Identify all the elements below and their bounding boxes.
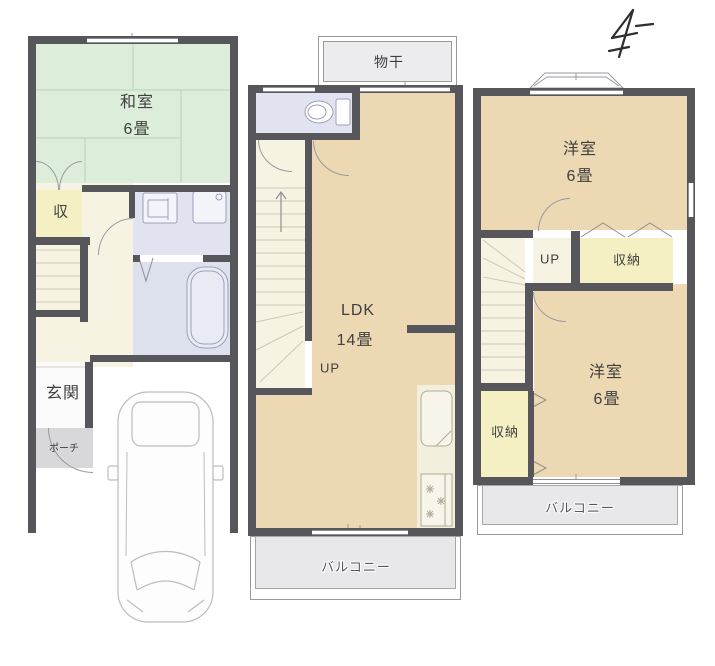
bedroom-top-size-label: 6畳 — [567, 162, 594, 186]
wall — [528, 391, 534, 477]
up-label-3f: UP — [540, 252, 560, 267]
wall — [620, 477, 695, 485]
compass-north-icon — [609, 10, 653, 57]
wall — [571, 231, 580, 291]
wall — [407, 325, 463, 333]
wall — [525, 283, 533, 383]
wall — [687, 88, 695, 485]
closet-1f-label: 収 — [53, 201, 69, 222]
wall — [256, 388, 312, 395]
bedroom-bottom-size-label: 6畳 — [594, 385, 621, 409]
wall — [203, 255, 230, 262]
window — [530, 90, 623, 95]
wall — [230, 36, 238, 533]
window — [533, 479, 620, 484]
bay-window — [530, 73, 623, 88]
wall — [36, 310, 88, 317]
window — [312, 530, 408, 535]
wall — [481, 383, 533, 391]
washer-icon — [143, 193, 177, 223]
folding-door — [139, 258, 153, 281]
wall — [129, 190, 135, 218]
balcony-2f-label: バルコニー — [321, 557, 391, 576]
up-label-2f: UP — [320, 361, 340, 376]
porch-label: ポーチ — [49, 440, 79, 455]
bedroom-bottom-label: 洋室 — [589, 358, 623, 382]
wall — [248, 85, 256, 536]
washitsu-label: 和室 — [120, 88, 154, 112]
wall — [28, 36, 36, 533]
window — [360, 87, 450, 92]
stairs-1f — [36, 250, 80, 302]
wall — [85, 362, 93, 428]
wall — [473, 230, 533, 238]
washitsu-size-label: 6畳 — [124, 115, 151, 139]
closet-bottom-label: 収納 — [491, 422, 519, 441]
ldk-size-label: 14畳 — [337, 326, 374, 350]
wall — [138, 185, 230, 192]
bedroom-top-label: 洋室 — [563, 135, 597, 159]
wall — [305, 133, 312, 341]
sink-icon — [193, 191, 226, 223]
floor-plan-canvas: 和室 6畳 収 玄関 ポーチ 物干 LDK 14畳 UP バルコニー 洋室 6畳… — [0, 0, 715, 666]
drying-label: 物干 — [374, 52, 404, 72]
balcony-3f-label: バルコニー — [545, 498, 615, 517]
wall — [473, 477, 533, 485]
wall — [90, 355, 238, 362]
ldk-label: LDK — [341, 302, 375, 320]
window — [688, 183, 694, 217]
wall — [525, 283, 673, 291]
stove-icon — [421, 474, 452, 526]
wall — [473, 88, 481, 485]
closet-top-label: 収納 — [613, 250, 641, 269]
toilet-icon — [305, 99, 350, 125]
genkan-label: 玄関 — [46, 379, 80, 403]
wall — [133, 255, 140, 262]
window — [87, 38, 178, 43]
stairs-3f — [481, 240, 525, 370]
stairs-2f-up-arrow — [276, 192, 286, 232]
kitchen-sink-icon — [421, 391, 452, 446]
car-icon — [108, 392, 223, 622]
bathtub-icon — [187, 267, 228, 348]
tatami-lines — [36, 44, 230, 183]
wall — [455, 85, 463, 536]
window — [263, 87, 315, 92]
